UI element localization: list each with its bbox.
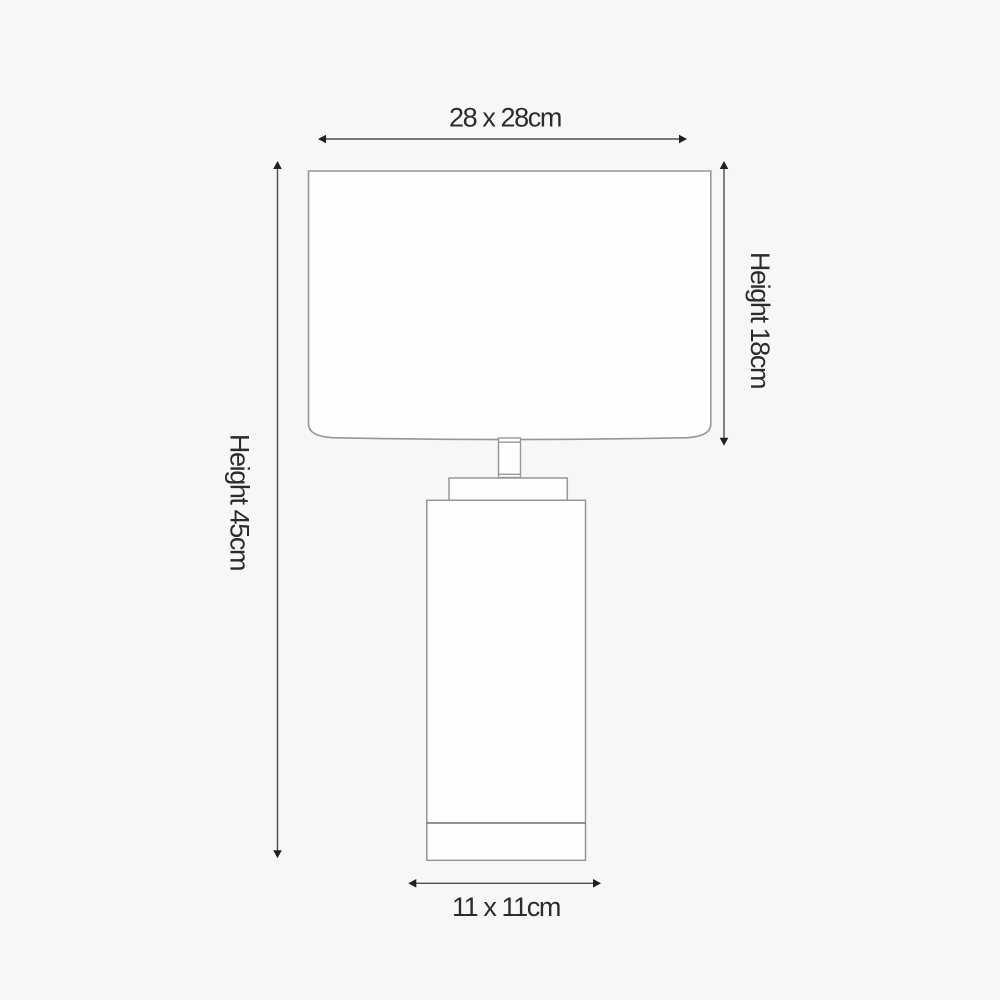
svg-text:11 x 11cm: 11 x 11cm <box>452 892 560 922</box>
svg-text:28 x 28cm: 28 x 28cm <box>449 103 561 133</box>
svg-text:Height 18cm: Height 18cm <box>745 252 775 388</box>
svg-text:Height 45cm: Height 45cm <box>225 434 255 570</box>
